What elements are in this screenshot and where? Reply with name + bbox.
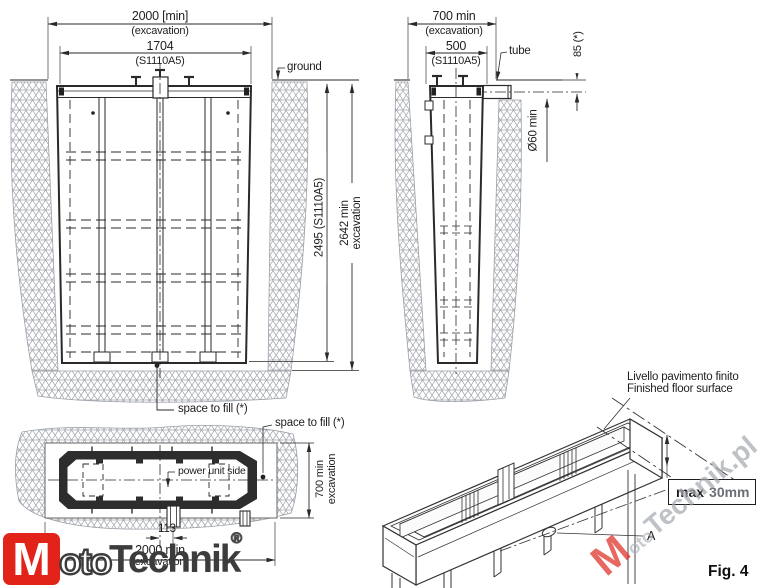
front-dim-width-model: 1704: [100, 39, 220, 53]
side-dim-width-excavation-sub: (excavation): [395, 25, 513, 37]
side-bottom: [410, 371, 509, 402]
front-view: [10, 17, 359, 410]
front-dim-depth-excavation-line1: 2642 min: [339, 183, 351, 263]
floor-level-label-it: Livello pavimento finito: [627, 371, 739, 384]
side-dim-width-model: 500: [396, 39, 516, 53]
mototechnik-logo: M oto Technik ®: [0, 526, 260, 588]
logo-m-badge: M: [3, 533, 60, 585]
cassette-body: [57, 86, 251, 363]
cassette-side: [430, 86, 483, 363]
power-unit-side-label: power unit side: [178, 466, 246, 478]
space-to-fill-label-front: space to fill (*): [178, 403, 247, 416]
technical-drawing-sheet: 2000 [min] (excavation) 1704 (S1110A5) g…: [0, 0, 759, 588]
logo-technik: Technik: [109, 538, 239, 582]
side-dim-width-model-sub: (S1110A5): [396, 55, 516, 67]
iso-center-channel: [498, 463, 514, 505]
dim-85-label: 85 (*): [572, 15, 584, 73]
ground-label: ground: [287, 61, 322, 74]
plan-dim-depth-line1: 700 min: [314, 444, 326, 514]
front-dim-depth-excavation: 2642 min excavation: [339, 183, 363, 263]
front-dim-depth-model: 2495 (S1110A5): [314, 152, 327, 282]
front-dim-width-excavation: 2000 [min]: [100, 9, 220, 23]
figure-label: Fig. 4: [708, 563, 748, 581]
tube-label: tube: [509, 45, 531, 58]
space-to-fill-label-plan: space to fill (*): [275, 417, 344, 430]
excavation-wall-left: [11, 82, 58, 371]
floor-level-label-en: Finished floor surface: [627, 383, 733, 396]
excavation-bottom: [32, 371, 291, 402]
plan-dim-depth-line2: excavation: [326, 444, 338, 514]
plan-dim-depth: 700 min excavation: [314, 444, 338, 514]
plan-stub-2: [240, 511, 250, 526]
front-dim-width-excavation-sub: (excavation): [100, 25, 220, 37]
logo-registered-mark: ®: [231, 530, 242, 547]
front-dim-depth-excavation-line2: excavation: [351, 183, 363, 263]
dim-o60-label: Ø60 min: [528, 96, 541, 164]
front-dim-width-model-sub: (S1110A5): [100, 55, 220, 67]
side-wall-right: [491, 100, 521, 371]
excavation-wall-right: [268, 82, 308, 371]
side-dim-width-excavation: 700 min: [395, 9, 513, 23]
side-wall-left: [395, 82, 426, 371]
side-view: [394, 17, 586, 402]
logo-oto: oto: [59, 541, 111, 583]
